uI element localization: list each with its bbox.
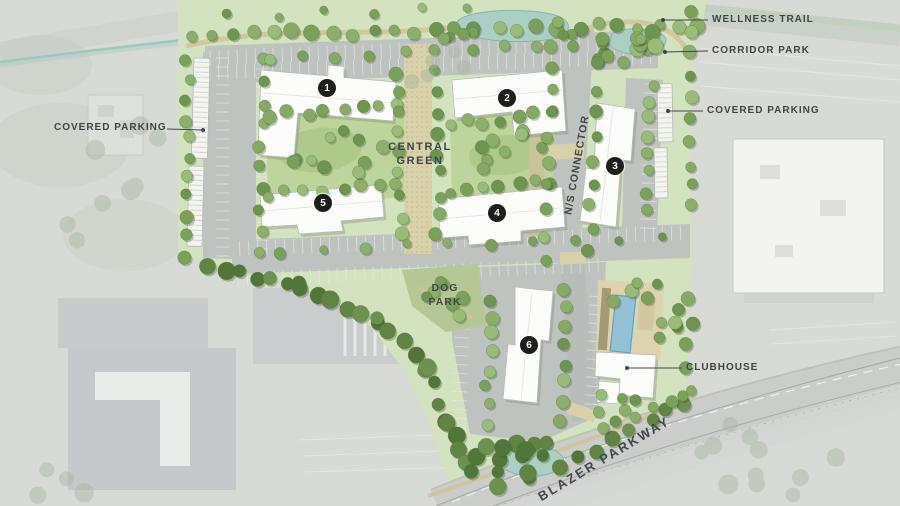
building-5-badge: 5 xyxy=(314,194,332,212)
building-2-badge: 2 xyxy=(498,89,516,107)
label-corridor-park: CORRIDOR PARK xyxy=(712,45,810,56)
building-3-badge: 3 xyxy=(606,157,624,175)
building-4-badge: 4 xyxy=(488,204,506,222)
building-6-badge: 6 xyxy=(520,336,538,354)
label-covered-parking-left: COVERED PARKING xyxy=(54,122,167,133)
label-central-green: CENTRAL GREEN xyxy=(378,140,462,169)
site-plan-rendering: WELLNESS TRAIL CORRIDOR PARK COVERED PAR… xyxy=(0,0,900,506)
label-covered-parking-right: COVERED PARKING xyxy=(707,105,820,116)
building-1-badge: 1 xyxy=(318,79,336,97)
site-plan-drawing xyxy=(0,0,900,506)
label-wellness-trail: WELLNESS TRAIL xyxy=(712,14,814,25)
label-clubhouse: CLUBHOUSE xyxy=(686,362,758,373)
label-dog-park: DOG PARK xyxy=(418,282,472,309)
